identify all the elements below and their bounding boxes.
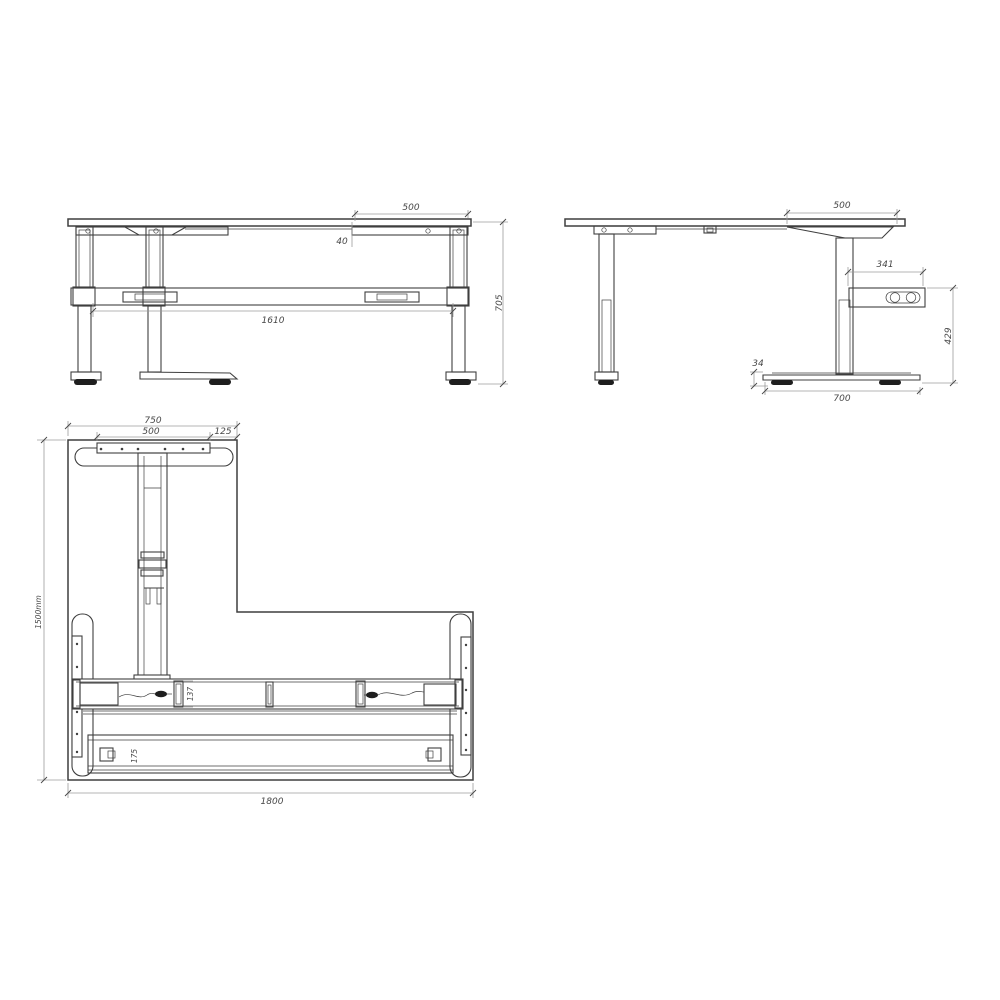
side-control-box-port-outline — [886, 292, 920, 303]
side-dim-341: 341 — [845, 260, 926, 286]
side-back-leg — [595, 234, 618, 385]
side-foot-front-glide — [771, 380, 793, 385]
front-dim-500-label: 500 — [402, 203, 419, 213]
drawing-canvas: 500 40 1610 705 — [0, 0, 1000, 1000]
front-view: 500 40 1610 705 — [68, 203, 508, 387]
side-desktop — [565, 219, 905, 226]
front-dim-40-label: 40 — [336, 237, 348, 247]
side-dim-500: 500 — [784, 201, 900, 224]
front-dim-1610-label: 1610 — [262, 316, 285, 326]
side-foot-rear-glide — [879, 380, 901, 385]
plan-right-cable-plug — [366, 692, 378, 698]
plan-top-column — [134, 453, 170, 680]
plan-desktop-outline — [68, 440, 473, 780]
side-dim-700: 700 — [762, 382, 923, 404]
plan-left-cable-plug — [155, 691, 167, 697]
front-left-leg — [76, 227, 93, 372]
front-desktop — [68, 219, 471, 226]
side-front-leg — [836, 238, 853, 374]
plan-top-foot — [75, 443, 233, 466]
plan-dim-175-label: 175 — [130, 749, 139, 764]
front-tray-slot-left — [123, 292, 177, 302]
front-dim-705-label: 705 — [495, 294, 505, 311]
side-view: 500 341 429 34 — [565, 201, 958, 404]
plan-view: 750 500 125 1500mm 137 — [34, 416, 476, 807]
plan-column-bracket — [144, 588, 164, 604]
plan-dim-1500-label: 1500mm — [34, 595, 43, 629]
side-back-foot-glide — [598, 380, 614, 385]
plan-bottom-rail — [88, 735, 453, 773]
plan-dim-1500: 1500mm — [34, 437, 66, 783]
plan-dim-500-label: 500 — [142, 427, 159, 437]
plan-dim-125-label: 125 — [214, 427, 231, 437]
plan-dim-1800: 1800 — [65, 783, 476, 807]
plan-dim-175: 175 — [130, 749, 139, 764]
side-foot — [763, 373, 920, 385]
front-right-leg — [450, 227, 467, 372]
side-top-bracket — [787, 227, 893, 238]
side-control-box — [849, 288, 925, 307]
plan-rail-bracket-right — [426, 748, 441, 761]
front-middle-bracket — [125, 227, 186, 235]
side-back-foot — [595, 372, 618, 380]
front-right-rail — [352, 227, 468, 235]
plan-dim-750-label: 750 — [144, 416, 161, 426]
side-control-box-port-left — [890, 293, 900, 303]
front-dim-705: 705 — [473, 219, 508, 387]
side-left-rail — [594, 226, 656, 234]
side-dim-700-label: 700 — [833, 394, 850, 404]
plan-dim-500: 500 — [94, 427, 213, 441]
front-tray-slot-right — [365, 292, 419, 302]
plan-cable-clip-1 — [141, 552, 164, 558]
front-left-foot-glide — [74, 379, 97, 385]
side-dim-429: 429 — [922, 285, 958, 386]
plan-dim-1800-label: 1800 — [261, 797, 284, 807]
technical-drawing: 500 40 1610 705 — [0, 0, 1000, 1000]
plan-top-foot-plate — [97, 443, 210, 453]
side-dim-341-label: 341 — [876, 260, 893, 270]
front-right-foot — [446, 372, 476, 385]
front-crossbar-right-joint — [447, 287, 469, 306]
side-dim-429-label: 429 — [944, 327, 954, 344]
plan-rail-bracket-left — [100, 748, 115, 761]
side-dim-500-label: 500 — [833, 201, 850, 211]
side-middle-clip — [704, 226, 716, 233]
front-right-foot-glide — [449, 379, 471, 385]
front-middle-foot — [140, 372, 237, 385]
front-middle-foot-glide — [209, 379, 231, 385]
front-middle-leg — [146, 227, 163, 372]
front-crossbar — [71, 287, 469, 306]
side-control-box-port-right — [906, 293, 916, 303]
plan-dim-137-label: 137 — [186, 687, 195, 702]
front-left-foot — [71, 372, 101, 385]
plan-beam — [72, 679, 463, 709]
plan-dim-125: 125 — [210, 427, 240, 440]
front-left-rail — [76, 227, 228, 235]
front-crossbar-left-joint — [73, 287, 95, 306]
front-crossbar-middle-joint — [143, 287, 165, 306]
side-dim-34-label: 34 — [752, 359, 764, 369]
plan-cable-clip-2 — [139, 560, 166, 568]
